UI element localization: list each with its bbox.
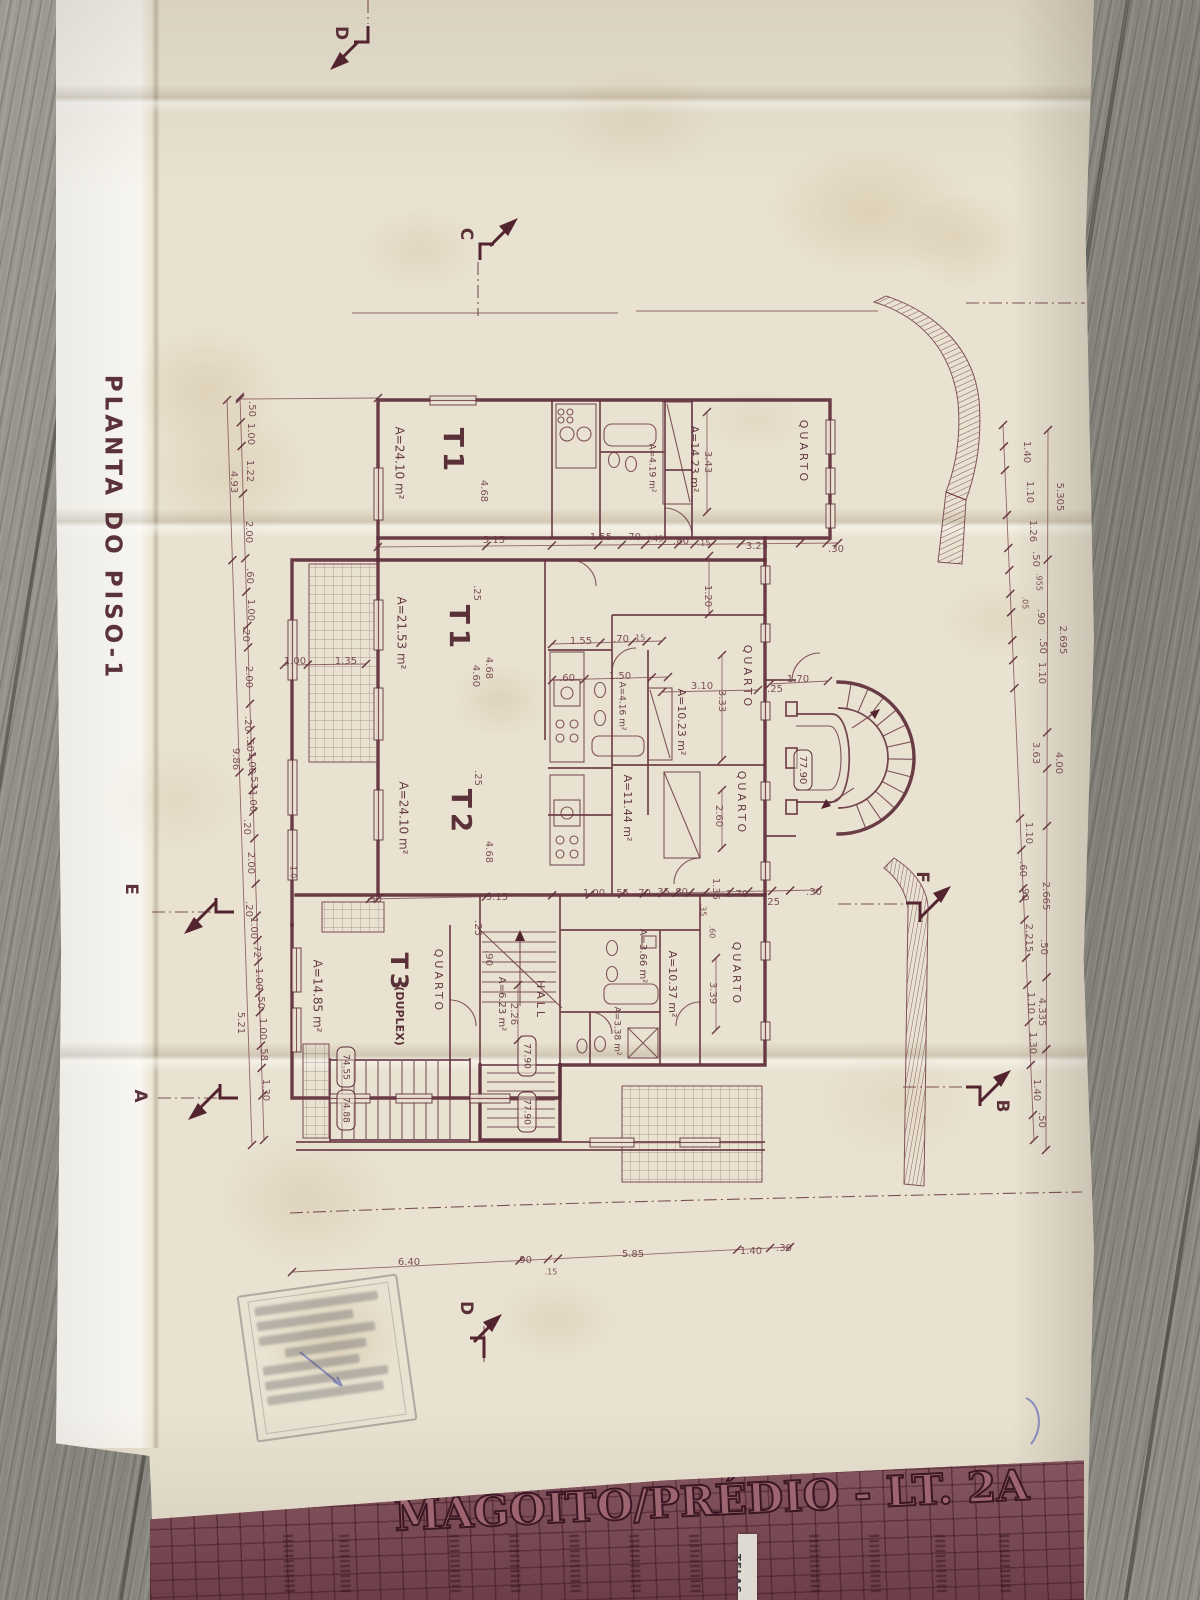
dimension-label: .50 (255, 993, 266, 1009)
room-name-label: QUARTO (432, 949, 445, 1013)
dimension-label: .15 (698, 539, 711, 548)
unit-label: T1 (443, 605, 476, 654)
dimension-label: .80 (672, 887, 688, 898)
dimension-label: .35 (654, 887, 670, 898)
dimension-label: 6.40 (398, 1257, 420, 1268)
level-elevation-label: 77.90 (522, 1099, 532, 1125)
room-area-label: A=14.85 m² (311, 960, 325, 1033)
dimension-label: .50 (1036, 1112, 1047, 1128)
dimension-label: .50 (1030, 551, 1041, 567)
title-block-text-column (509, 1534, 521, 1592)
dimension-label: .55 (613, 888, 629, 899)
room-area-label: A=6.23 m² (496, 977, 507, 1031)
section-marker-label: C (456, 228, 476, 240)
photo-of-floor-plan: PLANTA DO PISO-1DCEAFBDT1A=24.10 m²T1A=2… (0, 0, 1200, 1600)
dimension-label: 2.60 (713, 805, 724, 827)
dimension-label: .20 (243, 901, 254, 917)
room-area-label: A=4.16 m² (617, 682, 627, 731)
dimension-label: .05 (1021, 597, 1030, 610)
dimension-label: .90 (1035, 609, 1046, 625)
dimension-label: 2.215 (1023, 924, 1034, 953)
dimension-label: .90 (1019, 885, 1030, 901)
dimension-label: 4.60 (470, 665, 481, 687)
dimension-label: .25 (472, 920, 483, 936)
drawing-title: PLANTA DO PISO-1 (100, 375, 126, 681)
dimension-label: 1.26 (1027, 520, 1038, 542)
dimension-label: 4.68 (478, 480, 489, 502)
title-block-text-column (569, 1534, 581, 1592)
room-area-label: A=3.38 m² (612, 1007, 622, 1056)
dimension-label: 1.00 (257, 1018, 268, 1040)
level-elevation-label: 77.90 (522, 1043, 532, 1069)
dimension-label: 1.00 (245, 599, 256, 621)
dimension-label: 1.00 (253, 968, 264, 990)
floor-plan-drawing: PLANTA DO PISO-1DCEAFBDT1A=24.10 m²T1A=2… (0, 0, 1200, 1600)
room-area-label: A=11.44 m² (621, 775, 634, 842)
dimension-label: (.45) (648, 535, 667, 544)
dimension-label: .25 (472, 770, 483, 786)
dimension-label: .30 (366, 894, 382, 905)
tiled-areas (303, 564, 762, 1182)
dimension-label: 1.55 (590, 532, 612, 543)
dimension-label: 5.21 (235, 1012, 246, 1034)
dimension-label: 1.70 (787, 674, 809, 685)
dimension-label: 1.40 (1031, 1079, 1042, 1101)
room-name-label: QUARTO (797, 420, 810, 484)
dimension-label: 2.695 (1057, 626, 1068, 655)
room-area-label: A=10.37 m² (666, 951, 679, 1018)
level-elevation-label: 74.55 (341, 1054, 351, 1080)
dimension-label: 9.86 (230, 748, 241, 770)
dimension-label: 1.40 (1021, 441, 1032, 463)
dimension-label: 3.39 (707, 982, 718, 1004)
dimension-label: 5.15 (483, 535, 505, 546)
section-marker-label: F (912, 871, 932, 883)
curved-staircase (765, 653, 888, 836)
title-block-text-column (809, 1534, 821, 1592)
dimension-label: 4.00 (1053, 752, 1064, 774)
dimension-label: 1.35 (335, 656, 357, 667)
title-block-text-column (999, 1534, 1011, 1592)
dimension-label: .50 (1037, 638, 1048, 654)
section-marker-label: B (992, 1100, 1012, 1113)
dimension-label: 3.25 (746, 541, 768, 552)
title-block-text-column (283, 1534, 295, 1592)
dimension-label: 3.63 (1030, 742, 1041, 764)
dimension-label: .20 (241, 819, 252, 835)
dimension-label: 1.00 (247, 790, 258, 812)
dimension-label: 1.00 (246, 752, 257, 774)
room-area-label: A=21.53 m² (395, 597, 409, 670)
telas-tape: TELAS (738, 1534, 757, 1600)
room-area-label: A=14.23 m² (688, 426, 701, 493)
dimension-label: 1.55 (570, 636, 592, 647)
unit-label: T2 (445, 789, 478, 838)
dimension-label: .60 (1017, 861, 1028, 877)
dimension-label: .90 (483, 950, 494, 966)
unit-label: (DUPLEX) (393, 986, 406, 1045)
dimension-label: .70 (635, 888, 651, 899)
dimension-label: .60 (244, 568, 255, 584)
dimension-label: .25 (767, 684, 783, 695)
dimension-label: 1.30 (1027, 1032, 1038, 1054)
dimension-label: 4.335 (1036, 998, 1047, 1027)
dimension-label: 1.50 (609, 671, 631, 682)
room-area-label: A=10.23 m² (675, 689, 688, 756)
section-marker-label: D (456, 1301, 476, 1315)
dimension-label: 1.00 (248, 917, 259, 939)
title-block-text-column (629, 1534, 641, 1592)
dimension-label: .30 (806, 887, 822, 898)
room-area-label: A=24.10 m² (393, 427, 407, 500)
dimension-label: .30 (828, 544, 844, 555)
approval-stamp (236, 1273, 417, 1442)
dimension-label: 3.33 (716, 690, 727, 712)
dimension-label: .60 (559, 673, 575, 684)
dimension-label: 1.10 (1024, 481, 1035, 503)
dimension-label: .70 (613, 634, 629, 645)
dimension-label: 1.10 (1036, 662, 1047, 684)
dimension-label: .80 (673, 536, 689, 547)
dimension-label: .70 (625, 532, 641, 543)
dimension-label: .58 (258, 1045, 269, 1061)
unit-label: T1 (437, 428, 470, 477)
room-area-label: A=24.10 m² (397, 782, 411, 855)
telas-tape-label: TELAS (738, 1554, 742, 1573)
internal-stairs (478, 928, 562, 1008)
dimension-label: .50 (244, 736, 255, 752)
dimension-label: 2.00 (245, 852, 256, 874)
room-area-label: A=4.19 m² (647, 444, 657, 493)
dimension-label: 1.10 (1023, 822, 1034, 844)
dimension-label: 1.00 (583, 888, 605, 899)
dimension-label: 4.68 (483, 657, 494, 679)
dimension-label: .15 (545, 1268, 558, 1277)
dimension-label: 1.00 (245, 423, 256, 445)
dimension-label: .90 (516, 1255, 532, 1266)
dimension-label: .50 (1038, 939, 1049, 955)
dimension-label: 4.93 (228, 471, 239, 493)
section-marker-label: A (130, 1089, 150, 1103)
dimension-label: 1.40 (740, 1246, 762, 1257)
dimension-label: .955 (1035, 573, 1044, 591)
dimension-label: 5.305 (1054, 483, 1065, 512)
dimension-label: .72 (251, 942, 262, 958)
dimension-label: .20 (240, 626, 251, 642)
dimension-label: .30 (776, 1243, 792, 1254)
section-marker-label: D (331, 26, 351, 40)
dimension-label: 1.70 (726, 889, 748, 900)
dimension-label: .20 (242, 716, 253, 732)
dimension-label: 1.0 (289, 866, 298, 879)
section-marker-label: E (121, 883, 141, 895)
title-block-text-column (689, 1534, 701, 1592)
level-elevation-label: 77.90 (797, 756, 808, 785)
hatched-retaining-walls (874, 296, 980, 1186)
dimension-label: 1.35 (710, 878, 721, 900)
dimension-label: 1.20 (702, 585, 713, 607)
dimension-label: .15 (633, 634, 646, 643)
room-name-label: QUARTO (730, 942, 743, 1006)
dimension-label: 5.85 (622, 1249, 644, 1260)
title-block-text-column (449, 1534, 461, 1592)
dimension-label: 1.00 (284, 656, 306, 667)
dimension-label: 3.10 (691, 681, 713, 692)
dimension-label: 5.15 (486, 892, 508, 903)
building-walls (292, 400, 914, 1142)
dimension-label: .50 (246, 401, 257, 417)
dimension-label: 1.22 (244, 460, 255, 482)
dimension-label: .53 (248, 773, 259, 789)
dimension-label: 2.665 (1040, 882, 1051, 911)
dimension-label: 2.00 (243, 666, 254, 688)
dimension-label: 1.30 (260, 1079, 271, 1101)
level-elevation-label: 74.88 (341, 1097, 351, 1123)
section-marker-arrows (184, 26, 1011, 1358)
dimension-label: .35 (699, 904, 708, 917)
dimension-label: 2.00 (243, 521, 254, 543)
room-name-label: HALL (534, 980, 547, 1020)
dimension-label: .60 (708, 926, 717, 939)
dimension-label: 2.26 (508, 1003, 519, 1025)
dimension-label: 1.10 (1025, 992, 1036, 1014)
dimension-label: 4.68 (483, 841, 494, 863)
title-block-text-column (935, 1534, 947, 1592)
title-block-text-column (869, 1534, 881, 1592)
dimension-label: 3.43 (702, 451, 713, 473)
title-block-text-column (339, 1534, 351, 1592)
dimension-label: .25 (764, 897, 780, 908)
room-name-label: QUARTO (741, 645, 754, 709)
room-name-label: QUARTO (735, 771, 748, 835)
dimension-label: .25 (471, 585, 482, 601)
room-area-label: A=3.66 m² (637, 929, 648, 983)
